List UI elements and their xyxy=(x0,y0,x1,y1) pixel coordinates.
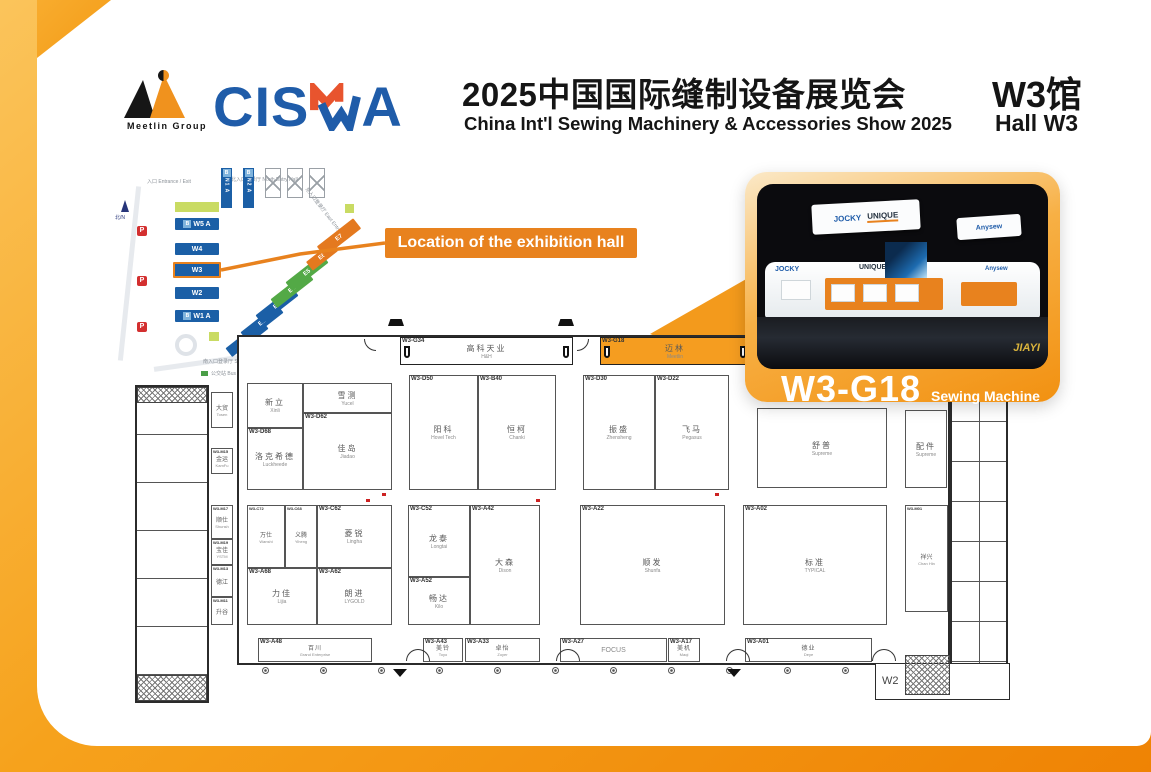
cisma-letters-left: CIS xyxy=(213,74,309,139)
booth-name-en: Grand Enterprise xyxy=(300,652,330,657)
hall-w3-highlighted: W3 xyxy=(173,262,221,278)
booth-name-cn: 美铃 xyxy=(436,643,450,652)
booth-name-en: YSTM xyxy=(216,554,227,559)
booth-name-cn: 卓怡 xyxy=(495,643,509,652)
booth-name-cn: 升谷 xyxy=(216,607,228,616)
booth-name-cn: 高科天业 xyxy=(467,343,507,354)
booth-name-cn: 佳岛 xyxy=(338,443,358,454)
booth-w3-g18-highlighted: W3-G18 迈林Meetlin xyxy=(600,337,750,365)
booth-name-cn: 顺仕 xyxy=(216,515,228,524)
compass-icon xyxy=(121,200,129,212)
booth-w3-c68: W3-C68义腾Yiheng xyxy=(285,505,317,568)
display-board xyxy=(831,284,855,302)
booth-name-cn: 德江 xyxy=(216,577,228,586)
metro-chip: B xyxy=(245,169,253,177)
booth-name-cn: 大贸 xyxy=(216,403,228,412)
unique-logo: UNIQUE xyxy=(867,210,899,223)
booth-name-en: TYPICAL xyxy=(805,568,826,574)
booth-name-en: Hovel Tech xyxy=(431,435,456,441)
fire-point-icon xyxy=(536,499,540,502)
booth-name-en: Supreme xyxy=(916,452,936,458)
booth-name-cn: 宝佳 xyxy=(216,545,228,554)
hall-label: E5 xyxy=(302,268,311,277)
booth-w3-d22: W3-D22飞马Pegasus xyxy=(655,375,729,490)
booth-name-cn: 恒柯 xyxy=(507,424,527,435)
jocky-logo: JOCKY xyxy=(833,213,861,223)
door-icon xyxy=(563,346,569,358)
booth-w3-c52: W3-C52龙泰Longtai xyxy=(408,505,470,577)
display-board xyxy=(863,284,887,302)
booth-name-cn: 雪测 xyxy=(338,390,358,401)
hinge-icon xyxy=(320,667,327,674)
booth-name-en: Lijia xyxy=(278,599,287,605)
booth-name-cn: 朗进 xyxy=(345,588,365,599)
wall-logo-unique: UNIQUE xyxy=(859,264,886,271)
booth-name-cn: 德业 xyxy=(801,643,815,652)
booth-w3-d30: W3-D30振盛Zhensheng xyxy=(583,375,655,490)
booth-name-cn: 义腾 xyxy=(295,530,307,539)
cisma-m-icon xyxy=(309,83,361,131)
wall-logo-jocky: JOCKY xyxy=(775,266,799,273)
booth-w3-a01: W3-A01德业Deye xyxy=(745,638,872,662)
hanging-banner: JOCKY UNIQUE xyxy=(811,199,920,235)
booth-render-photo: JOCKY UNIQUE Anysew JOCKY UNIQUE Anysew … xyxy=(757,184,1048,369)
side-booth-w3-m11: W3-M11升谷 xyxy=(211,597,233,625)
fire-point-icon xyxy=(382,493,386,496)
booth-name-en: Pegasus xyxy=(682,435,701,441)
cisma-logo: CISA xyxy=(213,74,403,139)
booth-name-en: Shunsh xyxy=(215,524,229,529)
booth-name-en: H&H xyxy=(481,354,492,360)
hall-label: W3 xyxy=(192,267,203,274)
booth-number: W3-G18 xyxy=(781,368,921,410)
booth-name-en: Jiadao xyxy=(340,454,355,460)
hall-n2a: BN2 A xyxy=(243,168,254,208)
booth-name-en: Luckheede xyxy=(263,462,287,468)
east-entry-hall xyxy=(345,204,354,213)
booth-name-cn: 振盛 xyxy=(609,424,629,435)
show-title-en: China Int'l Sewing Machinery & Accessori… xyxy=(464,113,952,135)
booth-name-en: Maqi xyxy=(680,652,689,657)
booth-name-cn: 顺发 xyxy=(643,557,663,568)
hall-label: W2 xyxy=(192,290,203,297)
booth-w3-a17: W3-A17美机Maqi xyxy=(668,638,700,662)
booth-w3-g34: W3-G34 高科天业H&H xyxy=(400,337,573,365)
booth-w3-a68: W3-A68力佳Lijia xyxy=(247,568,317,625)
east-service-rooms xyxy=(950,380,1008,700)
mountain-icon xyxy=(150,75,185,118)
booth-w3-a33: W3-A33卓怡Zoyer xyxy=(465,638,540,662)
exhibition-poster: Meetlin Group CISA 2025中国国际缝制设备展览会 China… xyxy=(0,0,1151,772)
canopy-icon xyxy=(558,319,574,326)
booth-card-label: W3-G18 Sewing Machine xyxy=(781,368,1040,410)
closed-hall xyxy=(265,168,281,198)
booth-w3-a62: W3-A62朗进LYGOLD xyxy=(317,568,392,625)
entrance-label: 入口 Entrance / Exit xyxy=(147,178,191,185)
hanging-banner: Anysew xyxy=(956,214,1021,240)
display-board xyxy=(895,284,919,302)
booth-name-cn: 菱锐 xyxy=(345,528,365,539)
hinge-icon xyxy=(494,667,501,674)
booth-w3-a52: W3-A52畅达Kilo xyxy=(408,577,470,625)
booth-name-en: Yiheng xyxy=(295,539,307,544)
booth-name-cn: 飞马 xyxy=(682,424,702,435)
metro-chip: B xyxy=(223,169,231,177)
booth-name-en: Xinli xyxy=(270,408,279,414)
booth-name-cn: 大森 xyxy=(495,557,515,568)
booth-video-screen xyxy=(885,242,927,278)
booth-w3-a22: W3-A22顺发Shunfa xyxy=(580,505,725,625)
booth-w3-c62: W3-C62菱锐Lingha xyxy=(317,505,392,568)
meetlin-group-label: Meetlin Group xyxy=(112,121,222,131)
north-entry-hall xyxy=(175,202,219,212)
booth-name-cn: 力佳 xyxy=(272,588,292,599)
booth-name-cn: 新立 xyxy=(265,397,285,408)
booth-name-en: Deye xyxy=(804,652,813,657)
hinge-icon xyxy=(436,667,443,674)
hall-label: E7 xyxy=(334,233,343,242)
hall-n1a: BN1 A xyxy=(221,168,232,208)
booth-photo-card: JOCKY UNIQUE Anysew JOCKY UNIQUE Anysew … xyxy=(745,172,1060,402)
booth-name-cn: 配件 xyxy=(916,441,936,452)
metro-chip: B xyxy=(183,220,191,228)
booth-name-cn: 美机 xyxy=(677,643,691,652)
side-booth-w3-m15: W3-M15金运KamFu xyxy=(211,448,233,474)
booth-name-cn: 洛克希德 xyxy=(255,451,295,462)
anysew-logo: Anysew xyxy=(976,223,1003,232)
booth-name-en: Chan Hin xyxy=(918,561,935,566)
hall-label: N1 A xyxy=(224,178,230,193)
booth-name-en: Tosen xyxy=(217,412,228,417)
show-title-cn: 2025中国国际缝制设备展览会 xyxy=(462,68,992,116)
hall-label: N2 A xyxy=(246,178,252,193)
closed-hall xyxy=(287,168,303,198)
booth-name-en: Dison xyxy=(499,568,512,574)
booth-name-en: LYGOLD xyxy=(345,599,365,605)
booth-name-cn: 迈林 xyxy=(665,343,685,354)
booth-name-en: Supreme xyxy=(812,451,832,457)
booth-supreme: 舒普Supreme xyxy=(757,408,887,488)
parking-icon: P xyxy=(137,226,147,236)
fire-point-icon xyxy=(715,493,719,496)
booth-w3-a42: W3-A42大森Dison xyxy=(470,505,540,625)
side-booth-w3-m13: W3-M13德江 xyxy=(211,565,233,597)
hinge-icon xyxy=(784,667,791,674)
booth-name-cn: 万仕 xyxy=(260,530,272,539)
hinge-icon xyxy=(262,667,269,674)
booth-name-en: Yucel xyxy=(341,401,353,407)
fire-point-icon xyxy=(366,499,370,502)
booth-w3-a02: W3-A02标准TYPICAL xyxy=(743,505,887,625)
jiayi-watermark: JIAYI xyxy=(1013,342,1040,354)
stairs-block xyxy=(137,387,207,403)
booth-name-cn: 畅达 xyxy=(429,593,449,604)
booth-floor xyxy=(757,317,1048,369)
booth-name-en: KamFu xyxy=(216,463,229,468)
booth-name-en: Meetlin xyxy=(667,354,683,360)
booth-name-en: Shunfa xyxy=(645,568,661,574)
hinge-icon xyxy=(668,667,675,674)
booth-w3-m01: W3-M01祥兴Chan Hin xyxy=(905,505,948,612)
hinge-icon xyxy=(552,667,559,674)
booth-name-en: Chanki xyxy=(509,435,525,441)
booth-name-en: Zhensheng xyxy=(606,435,631,441)
booth-w3-a48: W3-A48百川Grand Enterprise xyxy=(258,638,372,662)
location-callout: Location of the exhibition hall xyxy=(385,228,637,258)
canopy-icon xyxy=(388,319,404,326)
hall-w4: W4 xyxy=(175,243,219,255)
display-board xyxy=(781,280,811,300)
hinge-icon xyxy=(610,667,617,674)
booth-name-cn: 标准 xyxy=(805,557,825,568)
booth-name-cn: 舒普 xyxy=(812,440,832,451)
booth-w3-c72: W3-C72万仕Wanshi xyxy=(247,505,285,568)
sun-icon xyxy=(158,70,169,81)
booth-xinli: 新立Xinli xyxy=(247,383,303,428)
w2-hall-label: W2 xyxy=(882,675,899,687)
booth-name-en: Wanshi xyxy=(259,539,272,544)
entrance-arrow-icon xyxy=(727,669,741,677)
stairs-block xyxy=(905,655,950,695)
side-booth-tosen: 大贸Tosen xyxy=(211,392,233,428)
hall-label: W5 A xyxy=(193,221,210,228)
booth-name-cn: 金运 xyxy=(216,454,228,463)
stairs-block xyxy=(137,675,207,701)
door-icon xyxy=(604,346,610,358)
booth-name-cn: 百川 xyxy=(308,643,322,652)
meetlin-logo: Meetlin Group xyxy=(116,72,212,138)
booth-name-cn: 龙泰 xyxy=(429,533,449,544)
booth-supreme-parts: 配件Supreme xyxy=(905,410,947,488)
booth-w3-b40: W3-B40恒柯Chanki xyxy=(478,375,556,490)
hall-title-en: Hall W3 xyxy=(995,110,1078,137)
hall-w5a: BW5 A xyxy=(175,218,219,230)
booth-orange-panel xyxy=(825,278,943,310)
door-icon xyxy=(404,346,410,358)
booth-name-cn: 祥兴 xyxy=(920,552,932,561)
side-booth-w3-m19: W3-M19宝佳YSTM xyxy=(211,539,233,565)
cisma-letters-right: A xyxy=(361,74,402,139)
booth-w3-d50: W3-D50阳科Hovel Tech xyxy=(409,375,478,490)
booth-category: Sewing Machine xyxy=(931,388,1040,404)
wall-logo-anysew: Anysew xyxy=(985,266,1008,272)
booth-name-en: FOCUS xyxy=(601,647,626,654)
booth-name-en: Toyo xyxy=(439,652,447,657)
booth-name-en: Kilo xyxy=(435,604,443,610)
booth-w3-d62: W3-D62佳岛Jiadao xyxy=(303,413,392,490)
booth-name-en: Longtai xyxy=(431,544,447,550)
west-service-rooms xyxy=(135,385,209,703)
entrance-arrow-icon xyxy=(393,669,407,677)
booth-w3-d68: W3-D68洛克希德Luckheede xyxy=(247,428,303,490)
booth-name-cn: 阳科 xyxy=(434,424,454,435)
booth-name-en: Zoyer xyxy=(497,652,507,657)
side-booth-w3-m17: W3-M17顺仕Shunsh xyxy=(211,505,233,539)
hall-label: W4 xyxy=(192,246,203,253)
hinge-icon xyxy=(378,667,385,674)
hall-w2: W2 xyxy=(175,287,219,299)
parking-icon: P xyxy=(137,276,147,286)
booth-name-en: Lingha xyxy=(347,539,362,545)
booth-orange-panel xyxy=(961,282,1017,306)
hinge-icon xyxy=(842,667,849,674)
compass-label: 北/N xyxy=(115,214,125,221)
booth-yucel: 雪测Yucel xyxy=(303,383,392,413)
